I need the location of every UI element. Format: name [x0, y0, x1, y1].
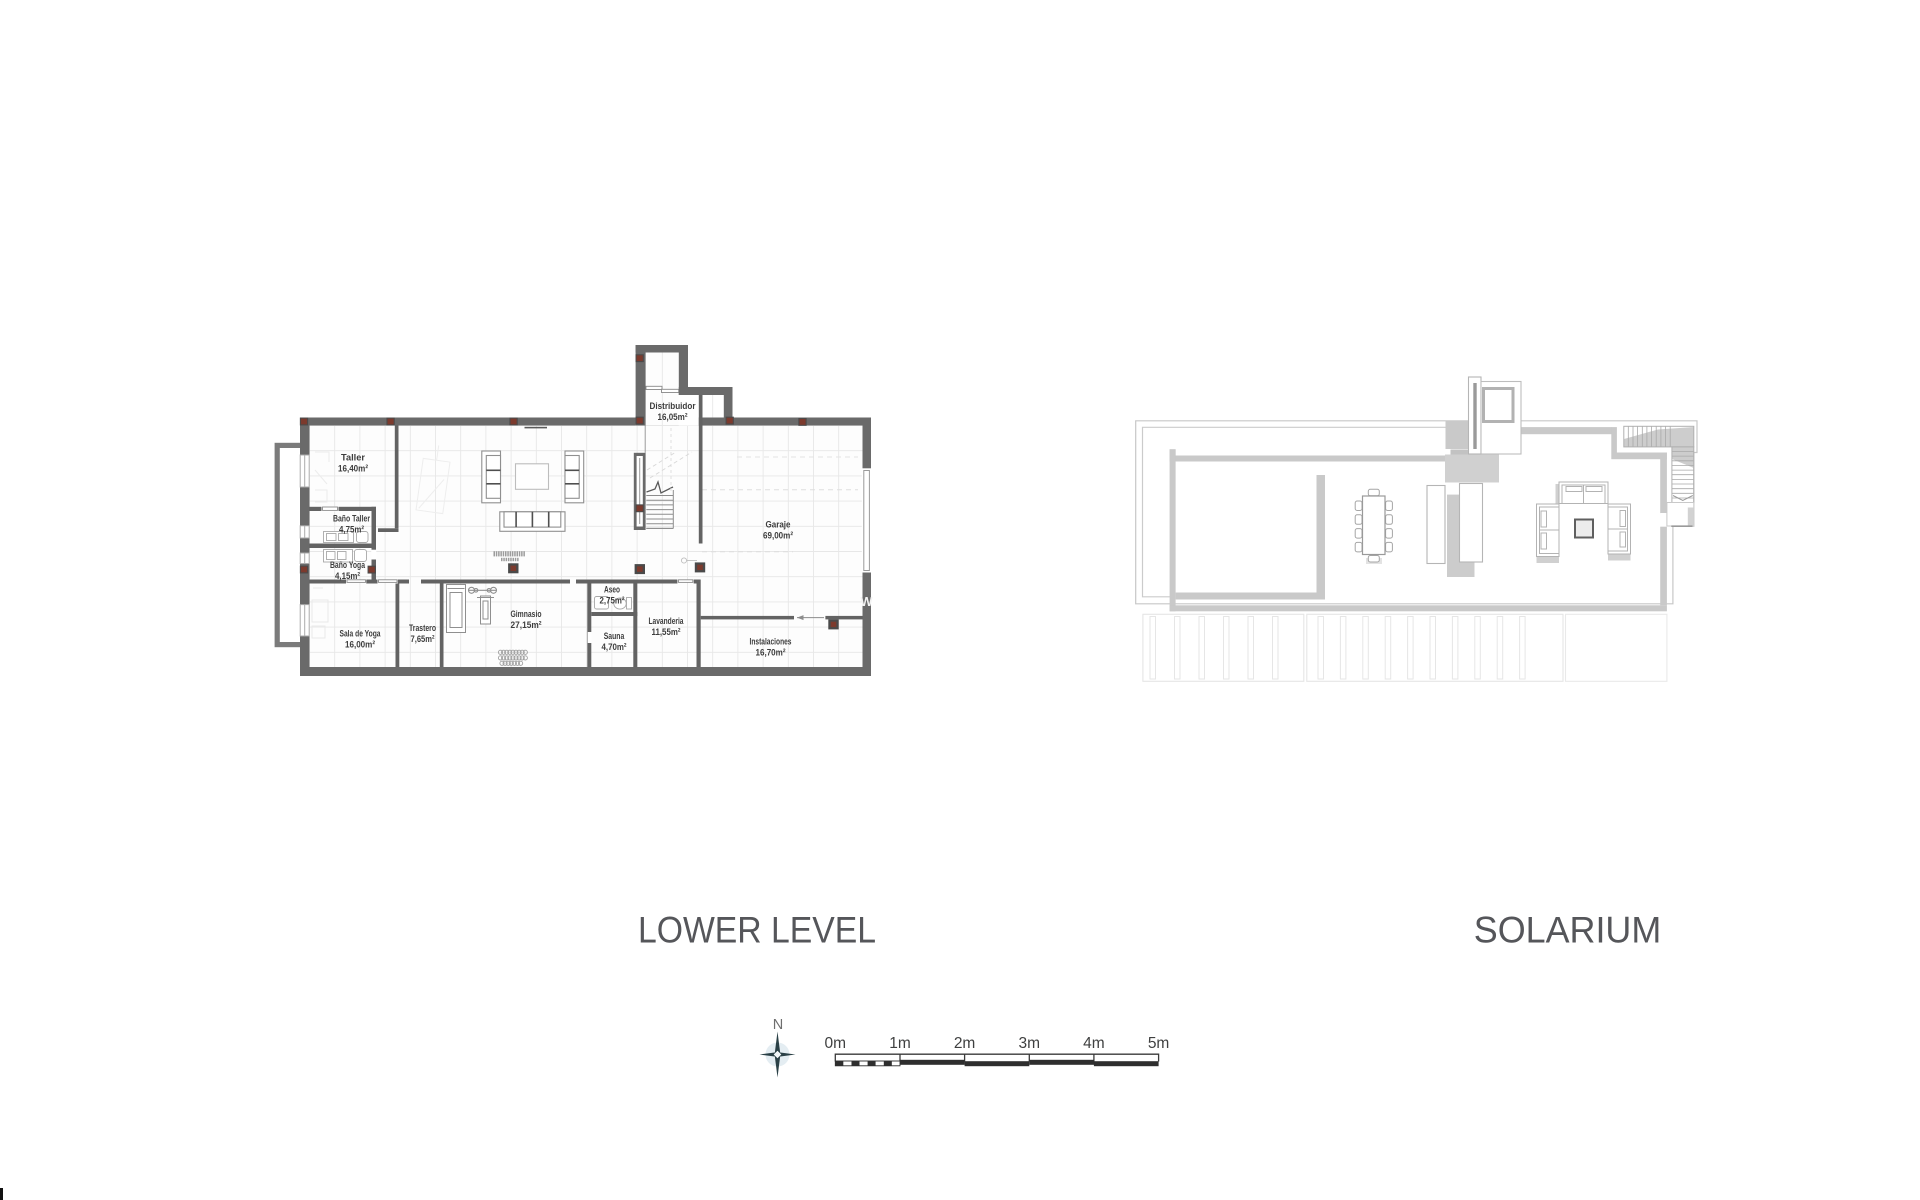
- svg-text:LOWER LEVEL: LOWER LEVEL: [638, 909, 876, 951]
- svg-text:Baño Yoga: Baño Yoga: [330, 559, 366, 570]
- svg-text:Gimnasio: Gimnasio: [511, 608, 542, 619]
- svg-text:Sauna: Sauna: [604, 630, 625, 641]
- svg-text:16,05m²: 16,05m²: [658, 411, 688, 422]
- svg-text:69,00m²: 69,00m²: [763, 530, 793, 541]
- svg-text:Lavanderia: Lavanderia: [649, 615, 685, 626]
- svg-text:16,00m²: 16,00m²: [345, 639, 375, 650]
- svg-text:W: W: [860, 594, 873, 609]
- svg-text:1m: 1m: [889, 1035, 911, 1052]
- svg-text:0m: 0m: [825, 1035, 847, 1052]
- svg-text:3m: 3m: [1019, 1035, 1041, 1052]
- svg-text:16,70m²: 16,70m²: [756, 647, 786, 658]
- svg-text:Trastero: Trastero: [409, 622, 436, 633]
- svg-text:4,70m²: 4,70m²: [602, 641, 627, 652]
- svg-text:7,65m²: 7,65m²: [411, 633, 435, 644]
- svg-text:Baño Taller: Baño Taller: [333, 513, 370, 524]
- svg-text:16,40m²: 16,40m²: [338, 463, 368, 474]
- svg-text:SOLARIUM: SOLARIUM: [1474, 909, 1662, 951]
- svg-text:2,75m²: 2,75m²: [600, 595, 625, 606]
- svg-text:Sala de Yoga: Sala de Yoga: [340, 628, 382, 639]
- svg-text:4,15m²: 4,15m²: [335, 570, 360, 581]
- svg-text:Instalaciones: Instalaciones: [750, 636, 792, 647]
- svg-text:11,55m²: 11,55m²: [652, 626, 681, 637]
- svg-text:2m: 2m: [954, 1035, 976, 1052]
- svg-text:N: N: [773, 1017, 783, 1033]
- svg-text:Garaje: Garaje: [766, 519, 791, 530]
- svg-text:Aseo: Aseo: [604, 584, 620, 595]
- svg-text:27,15m²: 27,15m²: [511, 619, 542, 630]
- svg-text:Distribuidor: Distribuidor: [650, 400, 696, 411]
- svg-text:Taller: Taller: [341, 452, 365, 463]
- svg-text:4,75m²: 4,75m²: [339, 524, 364, 535]
- svg-text:4m: 4m: [1083, 1035, 1105, 1052]
- svg-text:5m: 5m: [1148, 1035, 1170, 1052]
